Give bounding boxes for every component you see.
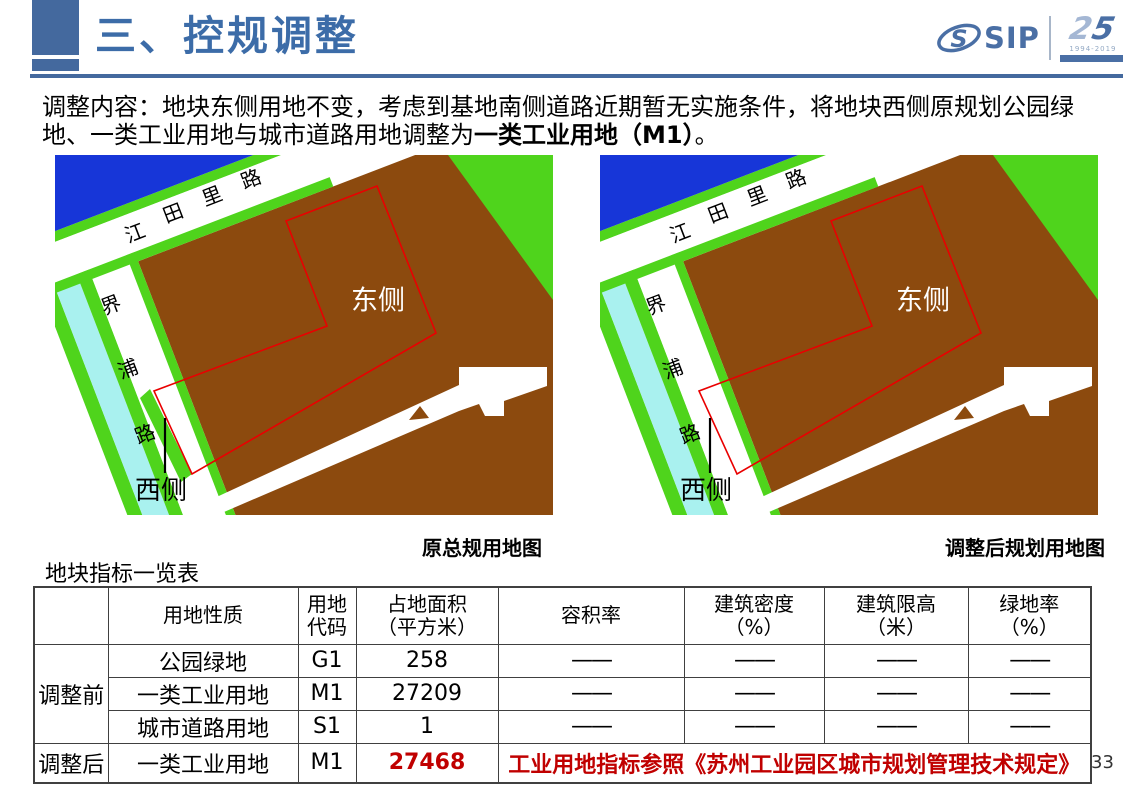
header-cell-landuse: 用地性质 <box>108 587 298 644</box>
data-cell: —— <box>684 677 824 710</box>
logo-divider <box>1049 16 1051 60</box>
svg-text:西侧: 西侧 <box>680 476 732 506</box>
data-cell: 1 <box>356 710 498 743</box>
table-header-row: 用地性质 用地 代码 占地面积 （平方米） 容积率 建筑密度 （%） 建筑限高 … <box>34 587 1091 644</box>
anniversary-years: 1994-2019 <box>1069 46 1116 53</box>
data-cell: 城市道路用地 <box>108 710 298 743</box>
table-row: 一类工业用地 M1 27209 —— —— —— —— <box>34 677 1091 710</box>
data-cell: 一类工业用地 <box>108 743 298 783</box>
slide: 三、控规调整 S SIP 25 1994-2019 调整内容：地块东侧用地不变，… <box>0 0 1123 794</box>
data-cell: G1 <box>298 644 356 677</box>
table-row-after: 调整后 一类工业用地 M1 27468 工业用地指标参照《苏州工业园区城市规划管… <box>34 743 1091 783</box>
group-cell-before: 调整前 <box>34 644 108 743</box>
data-cell: —— <box>498 710 684 743</box>
sip-logo-icon: S <box>936 17 982 59</box>
data-cell: —— <box>824 710 968 743</box>
note-cell: 工业用地指标参照《苏州工业园区城市规划管理技术规定》 <box>498 743 1091 783</box>
data-cell: —— <box>824 644 968 677</box>
data-cell: 一类工业用地 <box>108 677 298 710</box>
title-decor-square <box>32 0 79 55</box>
indicators-table: 用地性质 用地 代码 占地面积 （平方米） 容积率 建筑密度 （%） 建筑限高 … <box>33 586 1092 784</box>
data-cell: —— <box>684 644 824 677</box>
table-row: 城市道路用地 S1 1 —— —— —— —— <box>34 710 1091 743</box>
data-cell: 258 <box>356 644 498 677</box>
intro-bold-highlight: 一类工业用地（M1） <box>474 121 695 149</box>
data-cell: 公园绿地 <box>108 644 298 677</box>
anniversary-bar <box>1060 55 1123 62</box>
map-caption-right: 调整后规划用地图 <box>945 532 1105 561</box>
intro-line1: 调整内容：地块东侧用地不变，考虑到基地南侧道路近期暂无实施条件，将地块西侧原规划… <box>42 93 1117 121</box>
header-divider <box>30 74 1123 78</box>
header-cell-code: 用地 代码 <box>298 587 356 644</box>
data-cell: 27209 <box>356 677 498 710</box>
map-original: 江田里路界浦路东侧西侧 <box>55 155 553 515</box>
data-cell: M1 <box>298 677 356 710</box>
header-cell-density: 建筑密度 （%） <box>684 587 824 644</box>
page-title: 三、控规调整 <box>95 2 359 62</box>
sip-logo-letter: S <box>950 25 967 53</box>
svg-text:东侧: 东侧 <box>896 286 950 317</box>
header-cell-far: 容积率 <box>498 587 684 644</box>
data-cell: —— <box>824 677 968 710</box>
header-cell-area: 占地面积 （平方米） <box>356 587 498 644</box>
anniversary-number: 25 <box>1067 14 1119 45</box>
svg-text:东侧: 东侧 <box>351 286 405 317</box>
data-cell: M1 <box>298 743 356 783</box>
group-cell-after: 调整后 <box>34 743 108 783</box>
data-cell: —— <box>498 677 684 710</box>
data-cell: —— <box>684 710 824 743</box>
sip-logo: S SIP 25 1994-2019 <box>936 12 1123 64</box>
table-title: 地块指标一览表 <box>45 556 199 588</box>
header-cell-greenrate: 绿地率 （%） <box>968 587 1091 644</box>
data-cell: —— <box>968 644 1091 677</box>
title-decor-bar <box>32 59 79 71</box>
table-row: 调整前 公园绿地 G1 258 —— —— —— —— <box>34 644 1091 677</box>
svg-text:西侧: 西侧 <box>135 476 187 506</box>
map-adjusted: 江田里路界浦路东侧西侧 <box>600 155 1098 515</box>
data-cell: —— <box>498 644 684 677</box>
page-number: 33 <box>1091 752 1114 773</box>
data-cell: —— <box>968 677 1091 710</box>
data-cell-area-new: 27468 <box>356 743 498 783</box>
anniversary-mark: 25 1994-2019 <box>1060 14 1123 62</box>
sip-logo-text: SIP <box>984 21 1040 55</box>
header-cell-empty <box>34 587 108 644</box>
intro-text: 调整内容：地块东侧用地不变，考虑到基地南侧道路近期暂无实施条件，将地块西侧原规划… <box>42 93 1117 149</box>
data-cell: —— <box>968 710 1091 743</box>
intro-line2: 地、一类工业用地与城市道路用地调整为一类工业用地（M1）。 <box>42 121 1117 149</box>
data-cell: S1 <box>298 710 356 743</box>
header-cell-height: 建筑限高 （米） <box>824 587 968 644</box>
map-caption-left: 原总规用地图 <box>422 532 542 561</box>
